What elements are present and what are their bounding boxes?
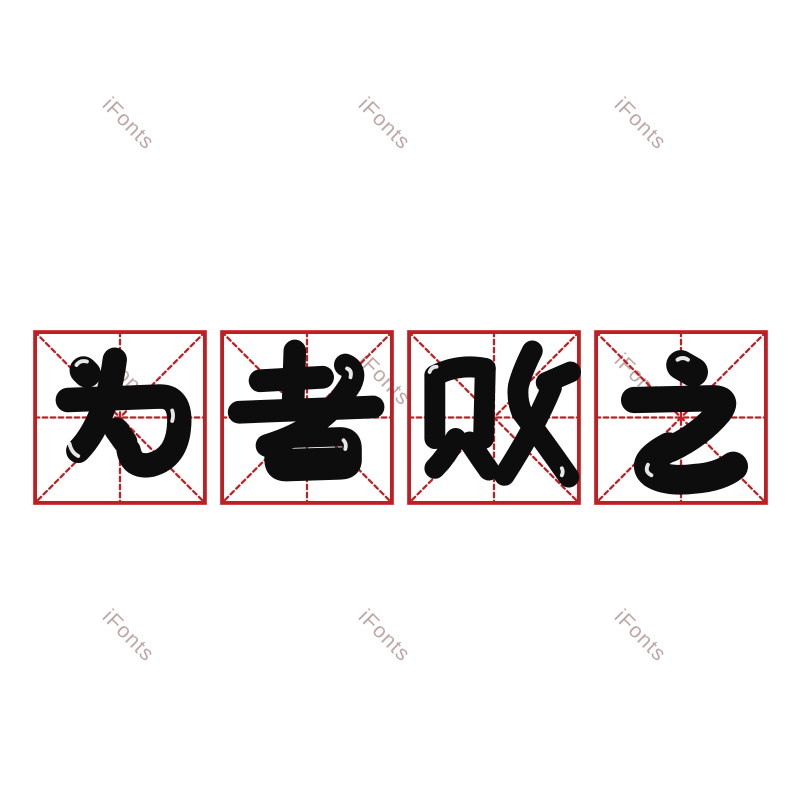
watermark-ifonts: iFonts [353, 93, 415, 155]
glyph-highlight-wei [172, 411, 173, 422]
mizige-cell-wei [33, 330, 207, 505]
mizige-cell-zhi [594, 330, 768, 505]
mizige-cell-zhe [220, 330, 394, 505]
glyph-stroke-wei [117, 430, 126, 442]
font-preview-canvas: iFontsiFontsiFontsiFontsiFontsiFontsiFon… [0, 0, 800, 800]
glyph-highlight-bai [562, 468, 563, 475]
glyph-stroke-zhi [681, 365, 693, 372]
mizige-cell-bai [407, 330, 581, 505]
watermark-ifonts: iFonts [97, 605, 159, 667]
phrase-row [33, 330, 768, 505]
mizige-grid-bai [407, 330, 581, 505]
watermark-ifonts: iFonts [97, 93, 159, 155]
glyph-stroke-wei [83, 370, 86, 374]
glyph-stroke-zhe [260, 377, 323, 381]
glyph-stroke-bai [484, 369, 486, 439]
glyph-highlight-zhi [678, 358, 688, 360]
glyph-stroke-zhe [281, 454, 344, 456]
glyph-stroke-zhe [239, 407, 373, 412]
mizige-grid-zhi [594, 330, 768, 505]
mizige-grid-wei [33, 330, 207, 505]
watermark-ifonts: iFonts [353, 605, 415, 667]
watermark-ifonts: iFonts [609, 605, 671, 667]
mizige-grid-zhe [220, 330, 394, 505]
watermark-ifonts: iFonts [609, 93, 671, 155]
glyph-highlight-zhe [344, 440, 346, 449]
